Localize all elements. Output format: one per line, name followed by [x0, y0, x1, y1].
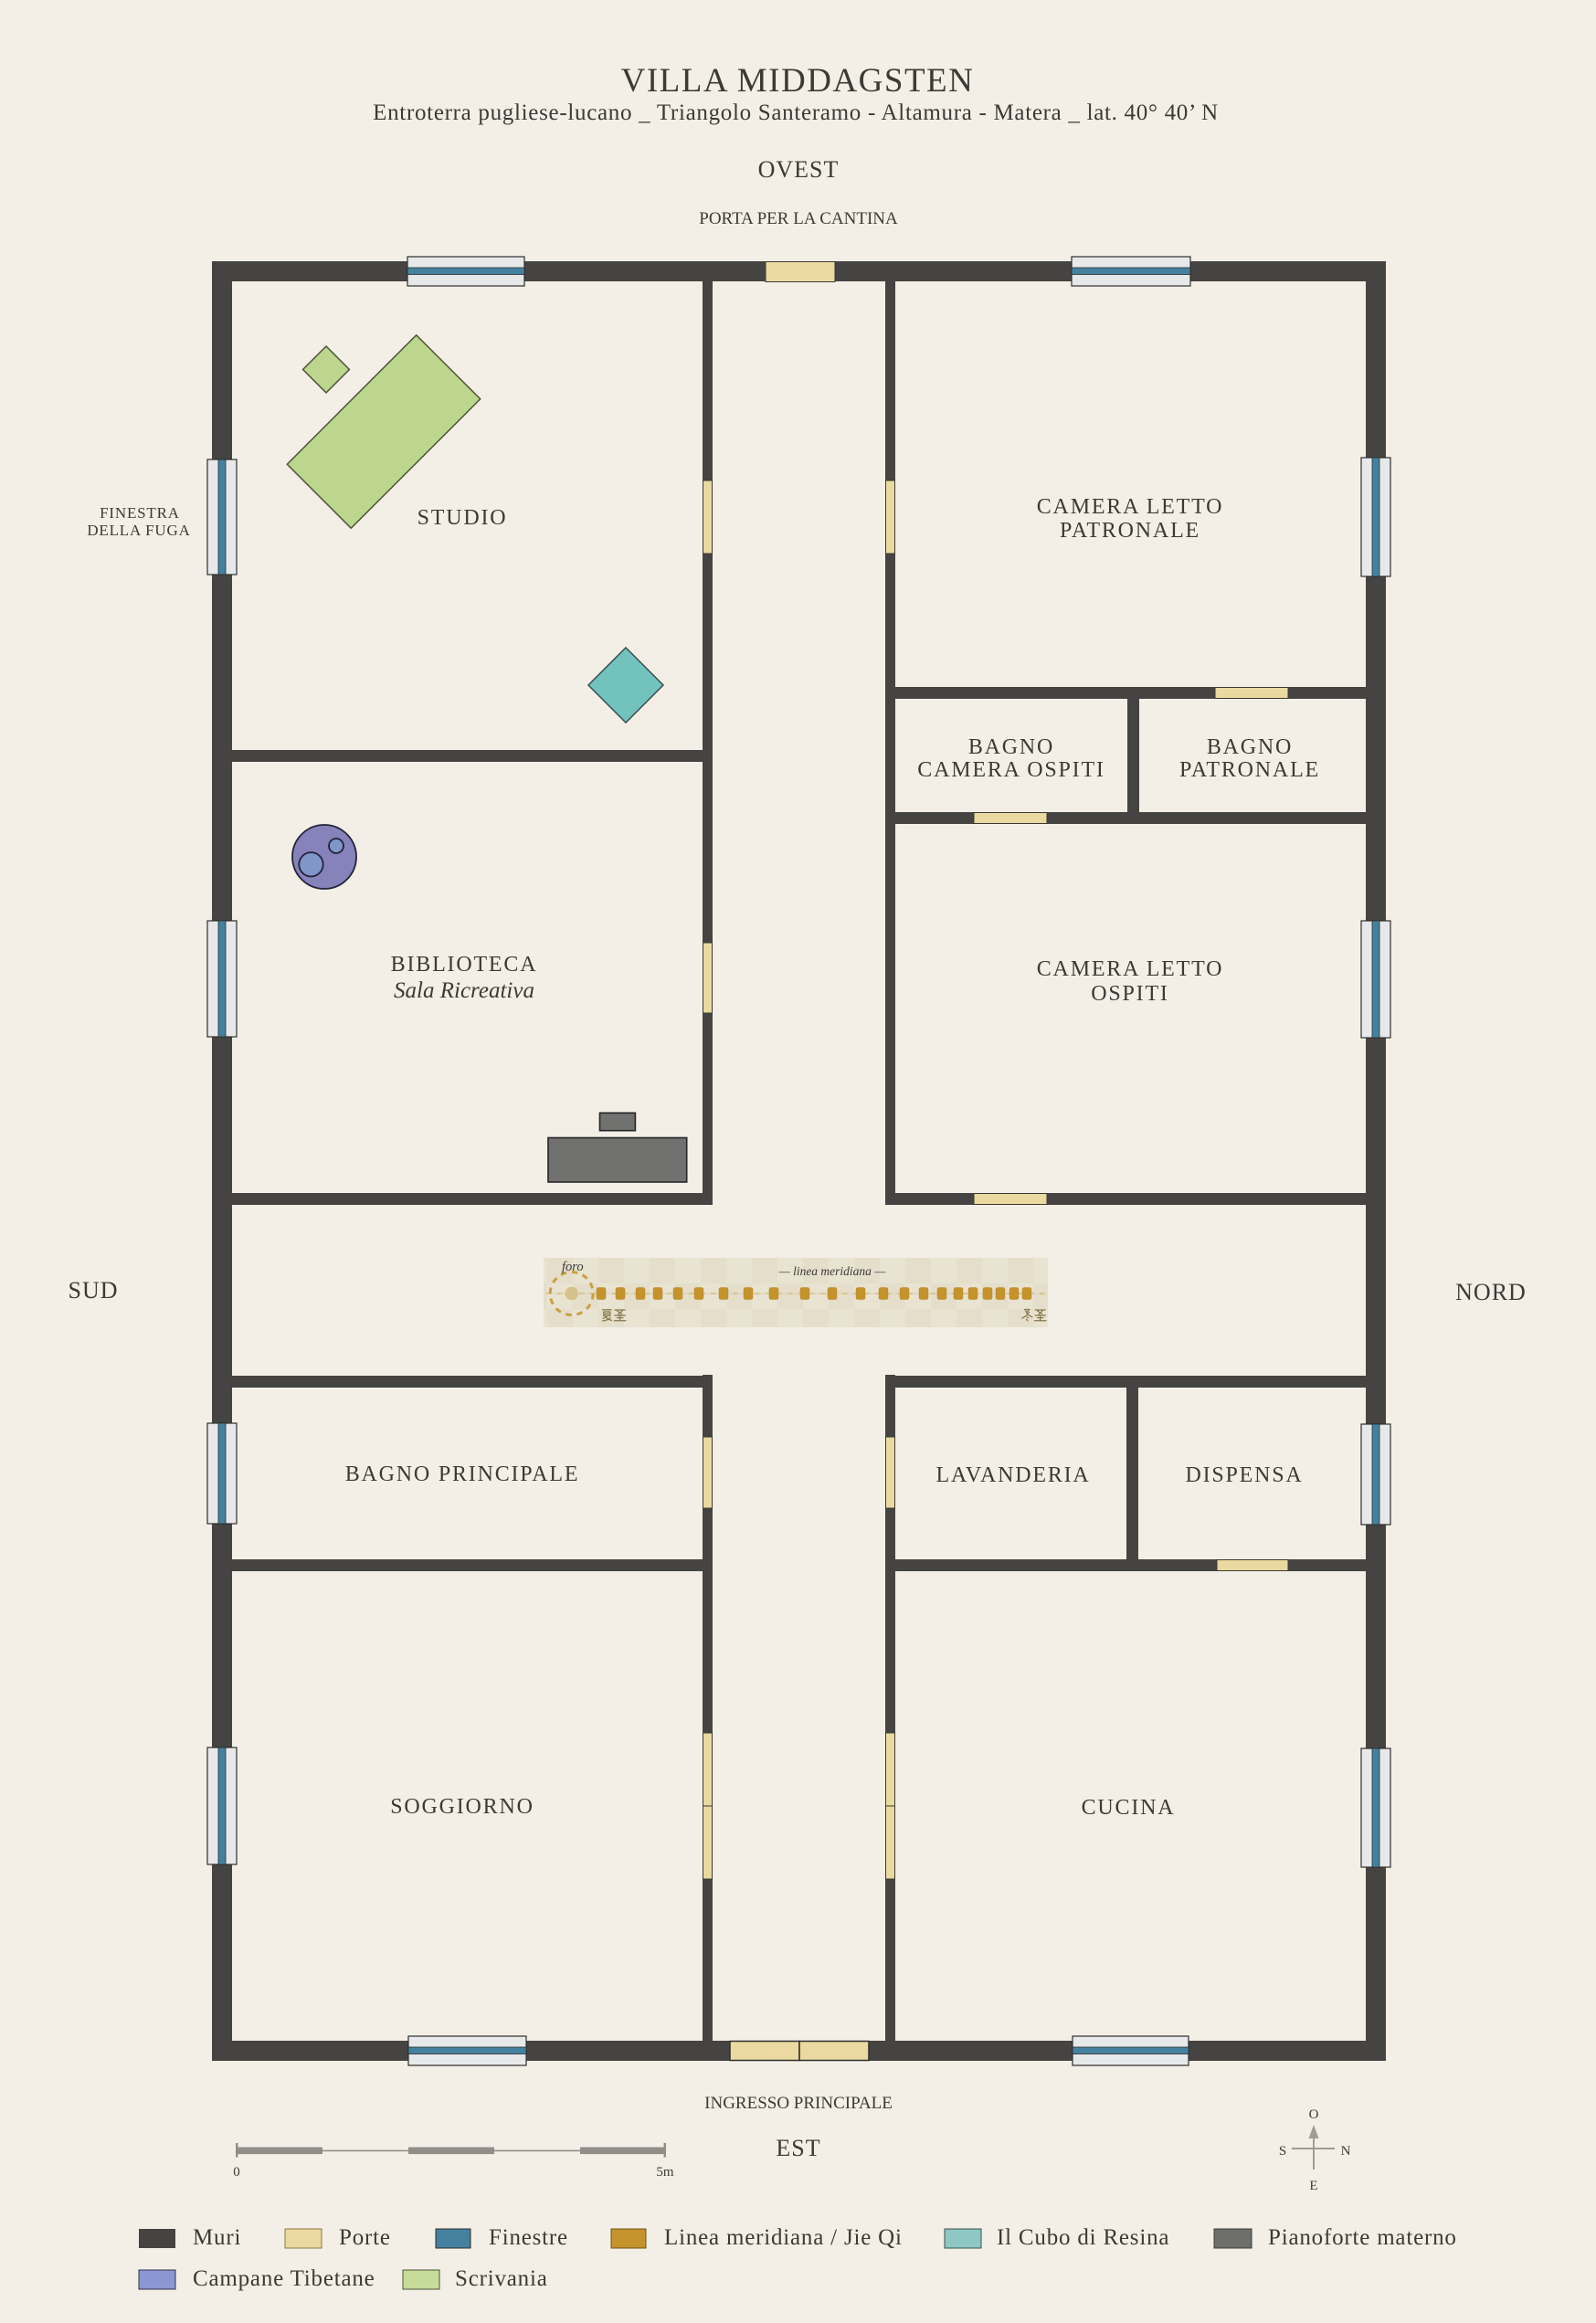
svg-text:Finestre: Finestre: [489, 2225, 568, 2250]
svg-text:CUCINA: CUCINA: [1082, 1796, 1176, 1820]
svg-text:INGRESSO PRINCIPALE: INGRESSO PRINCIPALE: [704, 2094, 893, 2113]
svg-text:NORD: NORD: [1455, 1279, 1527, 1305]
svg-text:PORTA PER LA CANTINA: PORTA PER LA CANTINA: [699, 209, 898, 228]
svg-text:OVEST: OVEST: [758, 156, 840, 183]
svg-text:CAMERA OSPITI: CAMERA OSPITI: [917, 758, 1105, 782]
svg-text:S: S: [1279, 2144, 1286, 2159]
svg-text:0: 0: [233, 2165, 240, 2180]
svg-text:Linea meridiana / Jie Qi: Linea meridiana / Jie Qi: [664, 2225, 903, 2250]
svg-text:Campane Tibetane: Campane Tibetane: [193, 2266, 375, 2291]
svg-text:PATRONALE: PATRONALE: [1179, 758, 1320, 782]
svg-text:CAMERA LETTO: CAMERA LETTO: [1037, 495, 1224, 519]
svg-text:Il Cubo di Resina: Il Cubo di Resina: [997, 2225, 1169, 2250]
svg-text:DELLA FUGA: DELLA FUGA: [87, 522, 190, 539]
svg-text:BAGNO: BAGNO: [968, 735, 1054, 759]
svg-text:— linea meridiana —: — linea meridiana —: [778, 1264, 887, 1278]
svg-text:Pianoforte materno: Pianoforte materno: [1268, 2225, 1457, 2250]
svg-text:Scrivania: Scrivania: [455, 2266, 548, 2291]
svg-text:foro: foro: [562, 1260, 584, 1274]
svg-text:O: O: [1309, 2107, 1319, 2122]
svg-text:Porte: Porte: [339, 2225, 391, 2250]
svg-text:EST: EST: [776, 2135, 820, 2161]
svg-text:DISPENSA: DISPENSA: [1185, 1463, 1303, 1487]
svg-text:Muri: Muri: [193, 2225, 241, 2250]
svg-text:OSPITI: OSPITI: [1091, 982, 1168, 1006]
svg-text:BIBLIOTECA: BIBLIOTECA: [391, 953, 538, 977]
svg-text:BAGNO PRINCIPALE: BAGNO PRINCIPALE: [345, 1462, 580, 1486]
svg-text:Sala Ricreativa: Sala Ricreativa: [394, 978, 534, 1003]
svg-text:STUDIO: STUDIO: [417, 506, 508, 530]
svg-text:5m: 5m: [656, 2165, 674, 2180]
svg-text:E: E: [1309, 2179, 1317, 2193]
svg-text:VILLA MIDDAGSTEN: VILLA MIDDAGSTEN: [621, 62, 975, 100]
svg-text:LAVANDERIA: LAVANDERIA: [935, 1463, 1090, 1487]
svg-text:PATRONALE: PATRONALE: [1060, 519, 1200, 543]
svg-text:CAMERA LETTO: CAMERA LETTO: [1037, 957, 1224, 981]
svg-text:FINESTRA: FINESTRA: [100, 504, 180, 522]
svg-text:BAGNO: BAGNO: [1207, 735, 1293, 759]
svg-text:SUD: SUD: [68, 1277, 118, 1304]
svg-text:N: N: [1341, 2144, 1351, 2159]
svg-text:Entroterra pugliese-lucano _ T: Entroterra pugliese-lucano _ Triangolo S…: [373, 100, 1219, 125]
svg-text:SOGGIORNO: SOGGIORNO: [390, 1795, 534, 1819]
